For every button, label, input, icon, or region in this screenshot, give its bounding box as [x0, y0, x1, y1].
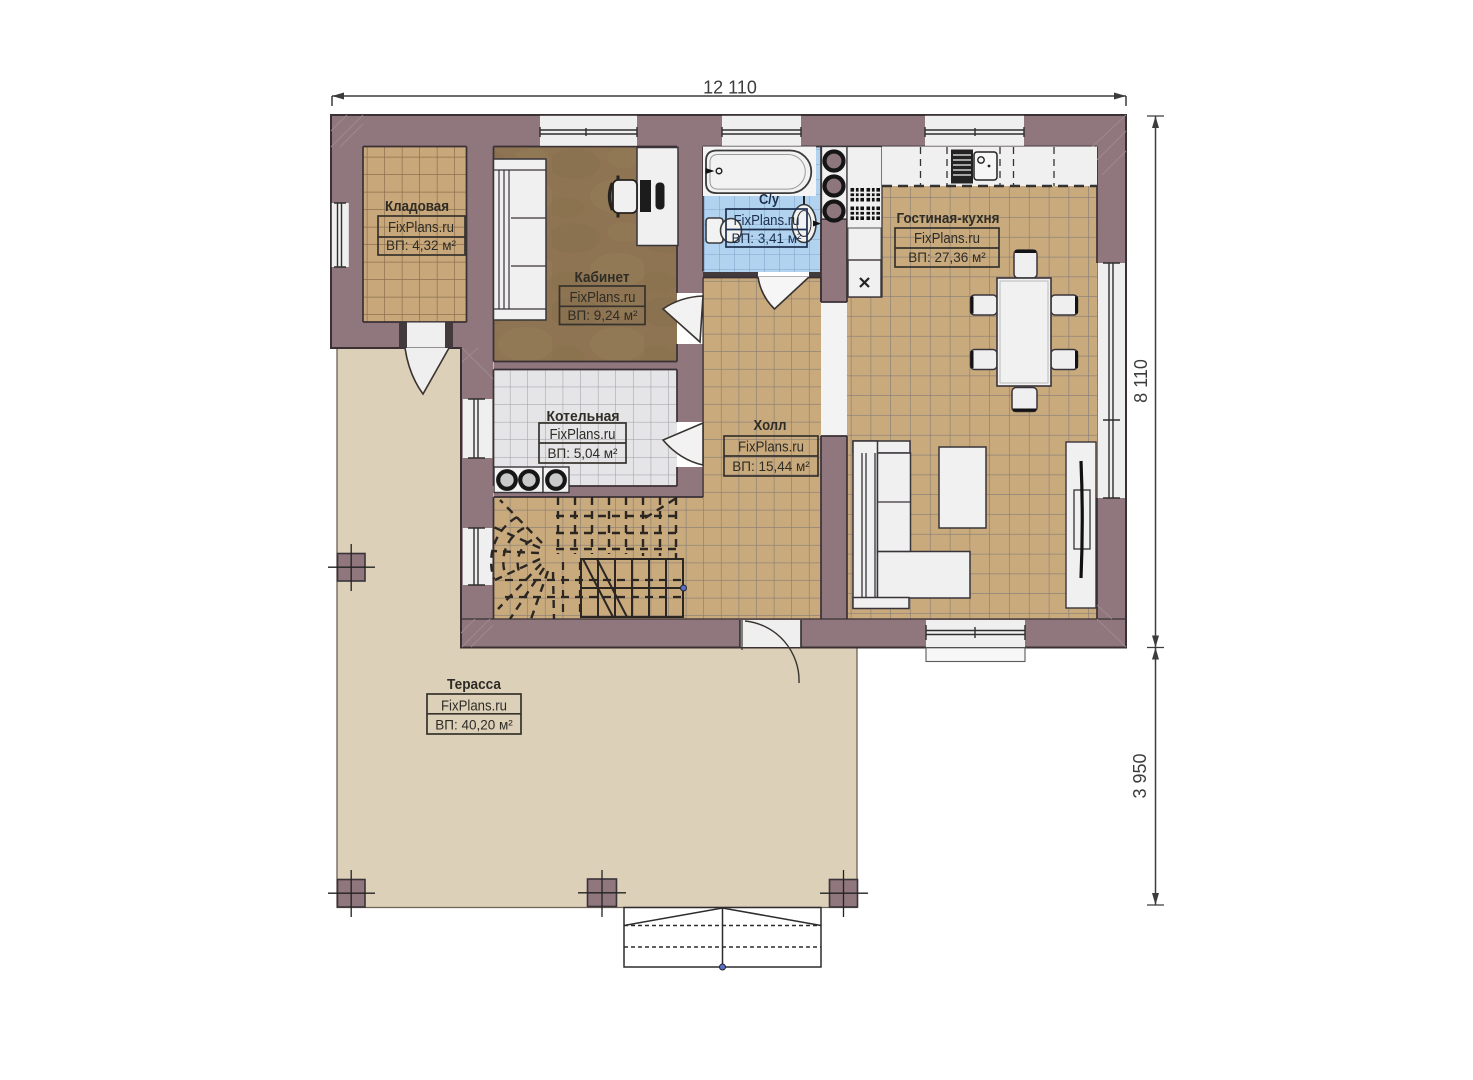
svg-text:ВП: 27,36 м²: ВП: 27,36 м² [908, 250, 986, 265]
svg-text:ВП: 40,20 м²: ВП: 40,20 м² [435, 718, 513, 733]
svg-text:FixPlans.ru: FixPlans.ru [738, 439, 804, 456]
svg-text:ВП: 5,04 м²: ВП: 5,04 м² [547, 446, 618, 461]
svg-text:ВП: 3,41 м²: ВП: 3,41 м² [731, 231, 802, 246]
svg-text:ВП: 15,44 м²: ВП: 15,44 м² [732, 459, 810, 474]
svg-text:12 110: 12 110 [703, 78, 757, 98]
svg-text:FixPlans.ru: FixPlans.ru [441, 698, 507, 715]
svg-text:Гостиная-кухня: Гостиная-кухня [897, 211, 1000, 227]
svg-text:Холл: Холл [754, 418, 787, 434]
svg-text:FixPlans.ru: FixPlans.ru [570, 289, 636, 306]
svg-text:FixPlans.ru: FixPlans.ru [734, 212, 800, 229]
svg-text:Терасса: Терасса [447, 677, 502, 693]
svg-text:8 110: 8 110 [1131, 359, 1151, 403]
svg-text:С/у: С/у [759, 192, 779, 208]
svg-text:Кабинет: Кабинет [575, 270, 630, 286]
svg-text:ВП: 9,24 м²: ВП: 9,24 м² [567, 308, 638, 323]
svg-text:FixPlans.ru: FixPlans.ru [388, 219, 454, 236]
svg-text:FixPlans.ru: FixPlans.ru [550, 426, 616, 443]
svg-text:ВП: 4,32 м²: ВП: 4,32 м² [386, 238, 457, 253]
svg-text:FixPlans.ru: FixPlans.ru [914, 230, 980, 247]
svg-text:3 950: 3 950 [1130, 753, 1150, 798]
svg-text:Кладовая: Кладовая [385, 199, 449, 215]
